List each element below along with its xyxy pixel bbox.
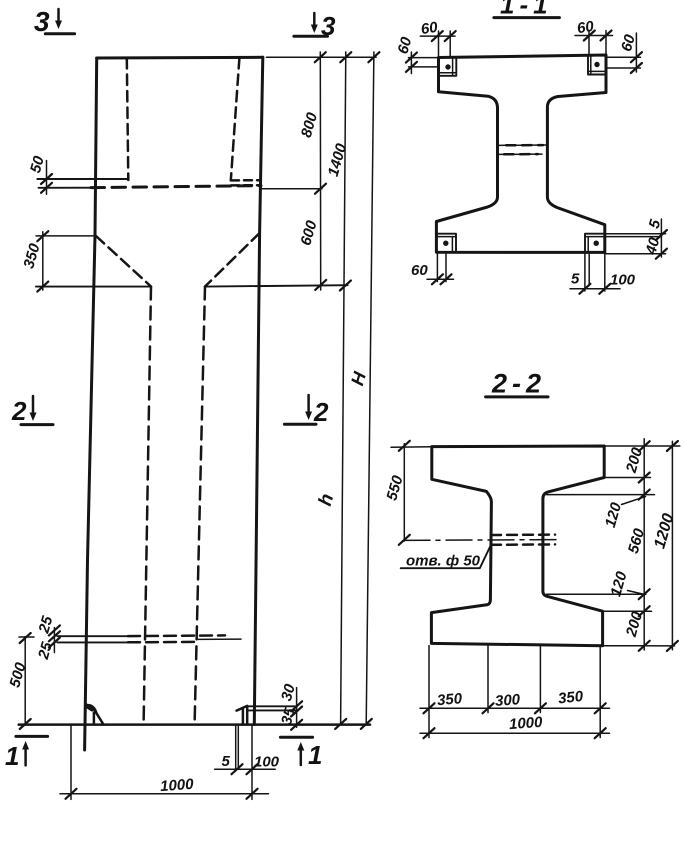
svg-text:60: 60 [395, 35, 416, 56]
svg-text:550: 550 [383, 473, 406, 502]
svg-text:60: 60 [411, 262, 428, 279]
svg-text:600: 600 [297, 218, 320, 247]
svg-text:60: 60 [576, 18, 596, 37]
svg-text:1: 1 [5, 741, 24, 771]
svg-text:2-2: 2-2 [491, 369, 546, 399]
svg-text:5: 5 [571, 271, 580, 288]
svg-text:1400: 1400 [325, 141, 351, 178]
svg-text:2: 2 [313, 397, 333, 427]
svg-text:350: 350 [20, 241, 43, 270]
svg-text:100: 100 [254, 754, 280, 771]
svg-text:50: 50 [27, 154, 48, 175]
svg-text:2: 2 [11, 396, 31, 426]
svg-text:отв. ф 50: отв. ф 50 [406, 553, 481, 570]
svg-text:60: 60 [420, 19, 440, 38]
svg-text:350: 350 [436, 690, 463, 709]
svg-text:H: H [347, 369, 370, 388]
svg-text:100: 100 [610, 272, 636, 289]
svg-text:300: 300 [494, 691, 521, 710]
svg-text:1000: 1000 [160, 776, 195, 795]
svg-text:200: 200 [623, 445, 647, 475]
svg-text:200: 200 [623, 609, 647, 639]
svg-text:1: 1 [308, 740, 327, 770]
svg-text:h: h [315, 491, 338, 508]
svg-text:800: 800 [298, 110, 321, 139]
svg-text:500: 500 [6, 660, 29, 689]
svg-text:1200: 1200 [651, 512, 677, 551]
svg-text:350: 350 [557, 688, 584, 708]
svg-text:1000: 1000 [508, 714, 543, 733]
svg-text:5: 5 [222, 753, 231, 770]
